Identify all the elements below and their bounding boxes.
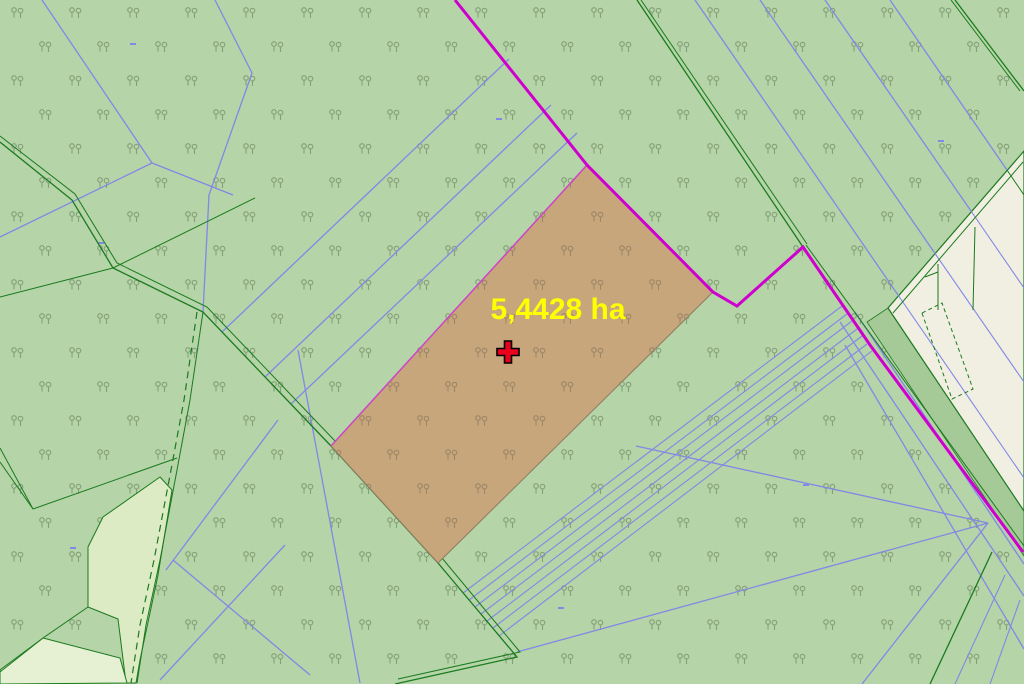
- area-label: 5,4428 ha: [490, 293, 625, 326]
- map-svg: 5,4428 ha: [0, 0, 1024, 684]
- map-canvas[interactable]: 5,4428 ha: [0, 0, 1024, 684]
